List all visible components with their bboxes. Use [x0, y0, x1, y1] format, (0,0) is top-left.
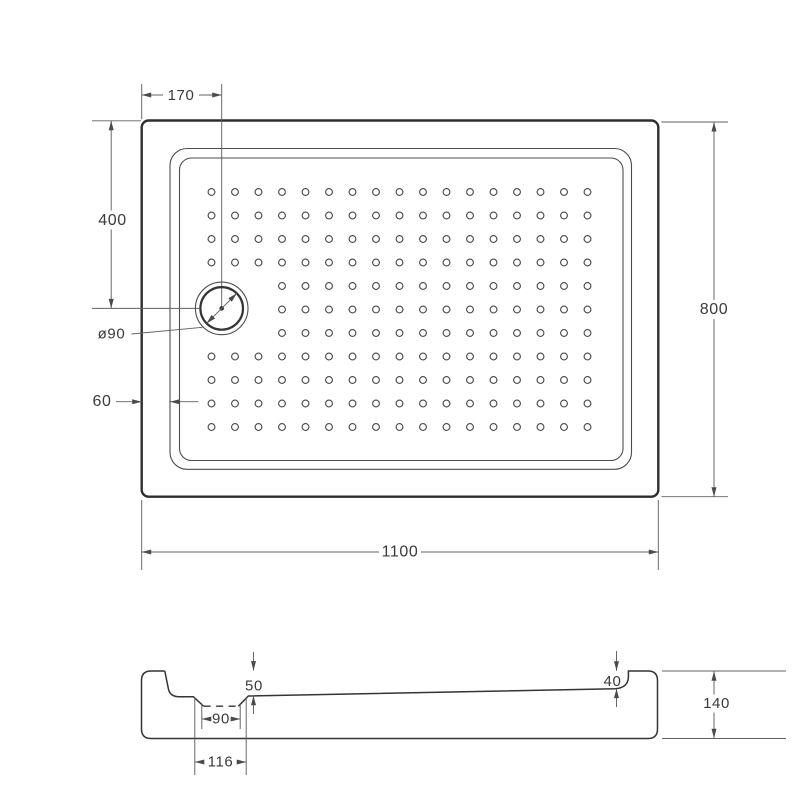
anti-slip-dot: [396, 400, 403, 407]
dim-140: 140: [662, 671, 786, 739]
anti-slip-dot: [255, 400, 262, 407]
anti-slip-dot: [326, 189, 333, 196]
dimension-arrowhead: [212, 93, 222, 98]
anti-slip-dot: [396, 353, 403, 360]
anti-slip-dot: [584, 353, 591, 360]
anti-slip-dot: [396, 424, 403, 431]
dimension-arrowhead: [170, 399, 180, 404]
anti-slip-dot: [584, 377, 591, 384]
anti-slip-dot: [302, 400, 309, 407]
dim-800-label: 800: [700, 301, 729, 318]
anti-slip-dot: [208, 189, 215, 196]
drain-diameter-label: ø90: [98, 326, 126, 343]
anti-slip-dot: [443, 259, 450, 266]
anti-slip-dot: [373, 330, 380, 337]
anti-slip-dot: [490, 330, 497, 337]
anti-slip-dot: [537, 353, 544, 360]
dim-1100-label: 1100: [382, 544, 419, 561]
anti-slip-dot: [537, 306, 544, 313]
dim-50-label: 50: [245, 678, 263, 695]
dimension-arrowhead: [712, 122, 717, 132]
anti-slip-dot: [584, 306, 591, 313]
anti-slip-dot: [396, 377, 403, 384]
anti-slip-dot: [373, 189, 380, 196]
dimension-arrowhead: [231, 717, 241, 722]
anti-slip-dot: [561, 377, 568, 384]
anti-slip-dot: [349, 330, 356, 337]
anti-slip-dot: [467, 236, 474, 243]
dim-116: 116: [195, 698, 246, 776]
anti-slip-dot: [561, 283, 568, 290]
anti-slip-dot: [467, 353, 474, 360]
dim-400-label: 400: [98, 212, 127, 229]
anti-slip-dot: [420, 259, 427, 266]
anti-slip-dot: [208, 400, 215, 407]
anti-slip-dot: [208, 236, 215, 243]
anti-slip-dot: [349, 212, 356, 219]
dim-90: 90: [202, 704, 240, 729]
anti-slip-dot: [443, 330, 450, 337]
anti-slip-dot: [537, 330, 544, 337]
tray-outer-edge: [142, 121, 659, 497]
anti-slip-dot: [561, 212, 568, 219]
anti-slip-dot: [232, 212, 239, 219]
anti-slip-dot: [584, 424, 591, 431]
anti-slip-dot: [302, 330, 309, 337]
dimension-arrowhead: [109, 121, 114, 131]
anti-slip-dot: [561, 400, 568, 407]
anti-slip-dot: [561, 306, 568, 313]
anti-slip-dots: [208, 189, 591, 431]
anti-slip-dot: [443, 189, 450, 196]
anti-slip-dot: [420, 377, 427, 384]
anti-slip-dot: [232, 236, 239, 243]
anti-slip-dot: [208, 377, 215, 384]
dim-60-label: 60: [93, 393, 112, 410]
anti-slip-dot: [349, 400, 356, 407]
anti-slip-dot: [467, 330, 474, 337]
anti-slip-dot: [467, 400, 474, 407]
anti-slip-dot: [349, 259, 356, 266]
anti-slip-dot: [420, 212, 427, 219]
anti-slip-dot: [514, 424, 521, 431]
dimension-arrowhead: [202, 717, 212, 722]
anti-slip-dot: [420, 400, 427, 407]
anti-slip-dot: [232, 259, 239, 266]
anti-slip-dot: [443, 306, 450, 313]
anti-slip-dot: [302, 353, 309, 360]
top-view: 170 400 800 1100 60: [92, 84, 728, 570]
anti-slip-dot: [302, 236, 309, 243]
anti-slip-dot: [279, 424, 286, 431]
anti-slip-dot: [561, 353, 568, 360]
anti-slip-dot: [349, 283, 356, 290]
anti-slip-dot: [490, 377, 497, 384]
dim-170: 170: [142, 84, 222, 119]
anti-slip-dot: [514, 306, 521, 313]
anti-slip-dot: [255, 259, 262, 266]
anti-slip-dot: [326, 424, 333, 431]
anti-slip-dot: [490, 259, 497, 266]
anti-slip-dot: [420, 330, 427, 337]
anti-slip-dot: [514, 400, 521, 407]
anti-slip-dot: [467, 259, 474, 266]
anti-slip-dot: [467, 306, 474, 313]
tray-inner-rim-inner-line: [180, 158, 624, 461]
anti-slip-dot: [326, 353, 333, 360]
anti-slip-dot: [584, 236, 591, 243]
dimension-arrowhead: [251, 696, 256, 706]
anti-slip-dot: [326, 259, 333, 266]
anti-slip-dot: [537, 424, 544, 431]
anti-slip-dot: [443, 400, 450, 407]
anti-slip-dot: [514, 377, 521, 384]
anti-slip-dot: [349, 236, 356, 243]
anti-slip-dot: [279, 306, 286, 313]
anti-slip-dot: [208, 259, 215, 266]
anti-slip-dot: [490, 283, 497, 290]
dimension-arrowhead: [237, 760, 247, 765]
anti-slip-dot: [396, 283, 403, 290]
anti-slip-dot: [232, 189, 239, 196]
anti-slip-dot: [326, 400, 333, 407]
dim-50: 50: [245, 652, 263, 714]
anti-slip-dot: [255, 353, 262, 360]
side-view: 50 40 140 90 1: [142, 651, 787, 775]
technical-drawing: 170 400 800 1100 60: [0, 0, 800, 800]
anti-slip-dot: [443, 283, 450, 290]
anti-slip-dot: [467, 189, 474, 196]
anti-slip-dot: [349, 189, 356, 196]
anti-slip-dot: [279, 189, 286, 196]
anti-slip-dot: [396, 212, 403, 219]
anti-slip-dot: [490, 212, 497, 219]
anti-slip-dot: [420, 189, 427, 196]
anti-slip-dot: [561, 236, 568, 243]
dimension-arrowhead: [649, 550, 659, 555]
anti-slip-dot: [514, 330, 521, 337]
drain-diameter-callout: ø90: [98, 326, 203, 343]
anti-slip-dot: [490, 400, 497, 407]
anti-slip-dot: [232, 424, 239, 431]
dimension-arrowhead: [712, 671, 717, 681]
anti-slip-dot: [584, 189, 591, 196]
tray-profile-outline: [142, 671, 658, 739]
anti-slip-dot: [490, 424, 497, 431]
anti-slip-dot: [373, 377, 380, 384]
anti-slip-dot: [208, 353, 215, 360]
anti-slip-dot: [467, 283, 474, 290]
dim-1100: 1100: [142, 500, 659, 570]
anti-slip-dot: [490, 236, 497, 243]
anti-slip-dot: [279, 377, 286, 384]
anti-slip-dot: [443, 353, 450, 360]
anti-slip-dot: [232, 353, 239, 360]
anti-slip-dot: [514, 236, 521, 243]
anti-slip-dot: [584, 259, 591, 266]
anti-slip-dot: [373, 306, 380, 313]
anti-slip-dot: [396, 189, 403, 196]
anti-slip-dot: [232, 377, 239, 384]
anti-slip-dot: [279, 236, 286, 243]
anti-slip-dot: [373, 353, 380, 360]
anti-slip-dot: [443, 212, 450, 219]
anti-slip-dot: [443, 377, 450, 384]
tray-inner-rim-outer-line: [170, 149, 632, 470]
anti-slip-dot: [302, 259, 309, 266]
anti-slip-dot: [349, 353, 356, 360]
dim-116-label: 116: [208, 754, 234, 771]
anti-slip-dot: [373, 236, 380, 243]
anti-slip-dot: [302, 283, 309, 290]
anti-slip-dot: [279, 212, 286, 219]
anti-slip-dot: [490, 306, 497, 313]
dimension-arrowhead: [132, 399, 142, 404]
anti-slip-dot: [302, 189, 309, 196]
anti-slip-dot: [561, 189, 568, 196]
dimension-arrowhead: [712, 487, 717, 497]
dimension-arrowhead: [109, 299, 114, 309]
anti-slip-dot: [514, 259, 521, 266]
dim-170-label: 170: [168, 87, 195, 104]
anti-slip-dot: [326, 330, 333, 337]
anti-slip-dot: [326, 306, 333, 313]
anti-slip-dot: [255, 212, 262, 219]
anti-slip-dot: [420, 283, 427, 290]
anti-slip-dot: [255, 189, 262, 196]
anti-slip-dot: [396, 306, 403, 313]
anti-slip-dot: [467, 377, 474, 384]
anti-slip-dot: [584, 212, 591, 219]
dimension-arrowhead: [614, 661, 619, 671]
anti-slip-dot: [232, 400, 239, 407]
anti-slip-dot: [326, 212, 333, 219]
dimension-arrowhead: [195, 760, 205, 765]
anti-slip-dot: [373, 400, 380, 407]
anti-slip-dot: [443, 236, 450, 243]
anti-slip-dot: [279, 283, 286, 290]
anti-slip-dot: [255, 236, 262, 243]
anti-slip-dot: [279, 353, 286, 360]
dim-90-label: 90: [212, 711, 230, 728]
anti-slip-dot: [396, 259, 403, 266]
anti-slip-dot: [255, 377, 262, 384]
anti-slip-dot: [208, 212, 215, 219]
anti-slip-dot: [373, 212, 380, 219]
anti-slip-dot: [537, 189, 544, 196]
dim-40-label: 40: [604, 673, 622, 690]
anti-slip-dot: [279, 400, 286, 407]
drawing-canvas: 170 400 800 1100 60: [0, 0, 800, 800]
anti-slip-dot: [584, 400, 591, 407]
anti-slip-dot: [208, 424, 215, 431]
dim-40: 40: [604, 651, 622, 707]
dim-60: 60: [93, 393, 199, 410]
anti-slip-dot: [561, 330, 568, 337]
anti-slip-dot: [349, 377, 356, 384]
anti-slip-dot: [279, 259, 286, 266]
anti-slip-dot: [255, 424, 262, 431]
anti-slip-dot: [561, 259, 568, 266]
anti-slip-dot: [420, 236, 427, 243]
dimension-arrowhead: [142, 93, 152, 98]
anti-slip-dot: [373, 283, 380, 290]
anti-slip-dot: [537, 377, 544, 384]
anti-slip-dot: [420, 353, 427, 360]
anti-slip-dot: [396, 236, 403, 243]
anti-slip-dot: [420, 424, 427, 431]
anti-slip-dot: [279, 330, 286, 337]
anti-slip-dot: [302, 306, 309, 313]
anti-slip-dot: [420, 306, 427, 313]
anti-slip-dot: [326, 283, 333, 290]
anti-slip-dot: [396, 330, 403, 337]
anti-slip-dot: [467, 212, 474, 219]
anti-slip-dot: [514, 353, 521, 360]
dimension-arrowhead: [251, 661, 256, 671]
anti-slip-dot: [326, 377, 333, 384]
anti-slip-dot: [537, 400, 544, 407]
anti-slip-dot: [561, 424, 568, 431]
anti-slip-dot: [373, 424, 380, 431]
dim-140-label: 140: [703, 695, 730, 712]
anti-slip-dot: [537, 236, 544, 243]
anti-slip-dot: [443, 424, 450, 431]
anti-slip-dot: [349, 306, 356, 313]
anti-slip-dot: [302, 377, 309, 384]
dim-800: 800: [662, 122, 729, 497]
anti-slip-dot: [537, 259, 544, 266]
anti-slip-dot: [349, 424, 356, 431]
dimension-arrowhead: [142, 550, 152, 555]
anti-slip-dot: [537, 212, 544, 219]
anti-slip-dot: [584, 330, 591, 337]
anti-slip-dot: [326, 236, 333, 243]
anti-slip-dot: [584, 283, 591, 290]
anti-slip-dot: [514, 212, 521, 219]
anti-slip-dot: [490, 353, 497, 360]
anti-slip-dot: [514, 189, 521, 196]
anti-slip-dot: [302, 212, 309, 219]
anti-slip-dot: [490, 189, 497, 196]
anti-slip-dot: [302, 424, 309, 431]
anti-slip-dot: [514, 283, 521, 290]
dim-400: 400: [92, 121, 141, 309]
anti-slip-dot: [467, 424, 474, 431]
dimension-arrowhead: [712, 729, 717, 739]
anti-slip-dot: [537, 283, 544, 290]
anti-slip-dot: [373, 259, 380, 266]
